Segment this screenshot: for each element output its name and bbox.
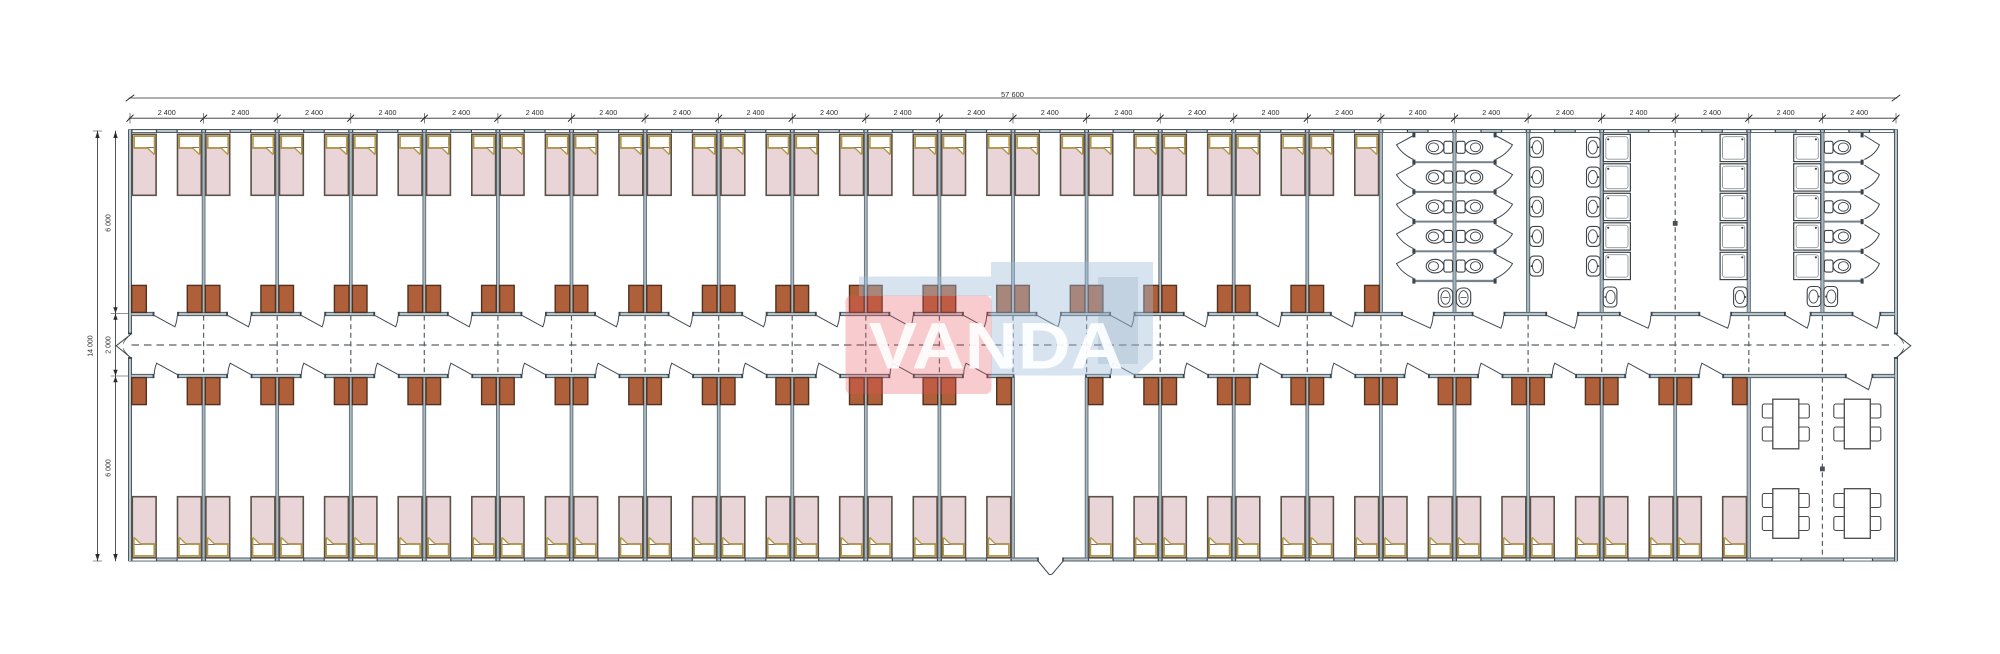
- svg-text:2 400: 2 400: [1556, 108, 1574, 117]
- svg-text:2 400: 2 400: [1777, 108, 1795, 117]
- svg-text:6 000: 6 000: [106, 459, 113, 477]
- svg-text:57 600: 57 600: [1001, 90, 1024, 99]
- svg-text:2 400: 2 400: [452, 108, 470, 117]
- svg-text:2 400: 2 400: [967, 108, 985, 117]
- svg-text:2 400: 2 400: [599, 108, 617, 117]
- svg-text:2 400: 2 400: [1114, 108, 1132, 117]
- svg-text:2 400: 2 400: [1482, 108, 1500, 117]
- svg-text:14 000: 14 000: [88, 335, 95, 357]
- svg-text:2 400: 2 400: [747, 108, 765, 117]
- svg-text:2 400: 2 400: [894, 108, 912, 117]
- svg-text:2 400: 2 400: [1850, 108, 1868, 117]
- svg-text:2 400: 2 400: [1335, 108, 1353, 117]
- svg-text:6 000: 6 000: [106, 214, 113, 232]
- svg-text:2 400: 2 400: [1262, 108, 1280, 117]
- svg-text:2 400: 2 400: [158, 108, 176, 117]
- svg-text:2 400: 2 400: [820, 108, 838, 117]
- svg-text:2 400: 2 400: [305, 108, 323, 117]
- svg-text:VANDA: VANDA: [869, 309, 1124, 383]
- svg-text:2 400: 2 400: [379, 108, 397, 117]
- svg-text:2 400: 2 400: [1188, 108, 1206, 117]
- svg-text:2 400: 2 400: [1409, 108, 1427, 117]
- svg-text:2 000: 2 000: [106, 336, 113, 354]
- svg-text:2 400: 2 400: [1703, 108, 1721, 117]
- svg-text:2 400: 2 400: [231, 108, 249, 117]
- svg-text:2 400: 2 400: [526, 108, 544, 117]
- svg-text:2 400: 2 400: [1630, 108, 1648, 117]
- svg-text:2 400: 2 400: [673, 108, 691, 117]
- svg-text:2 400: 2 400: [1041, 108, 1059, 117]
